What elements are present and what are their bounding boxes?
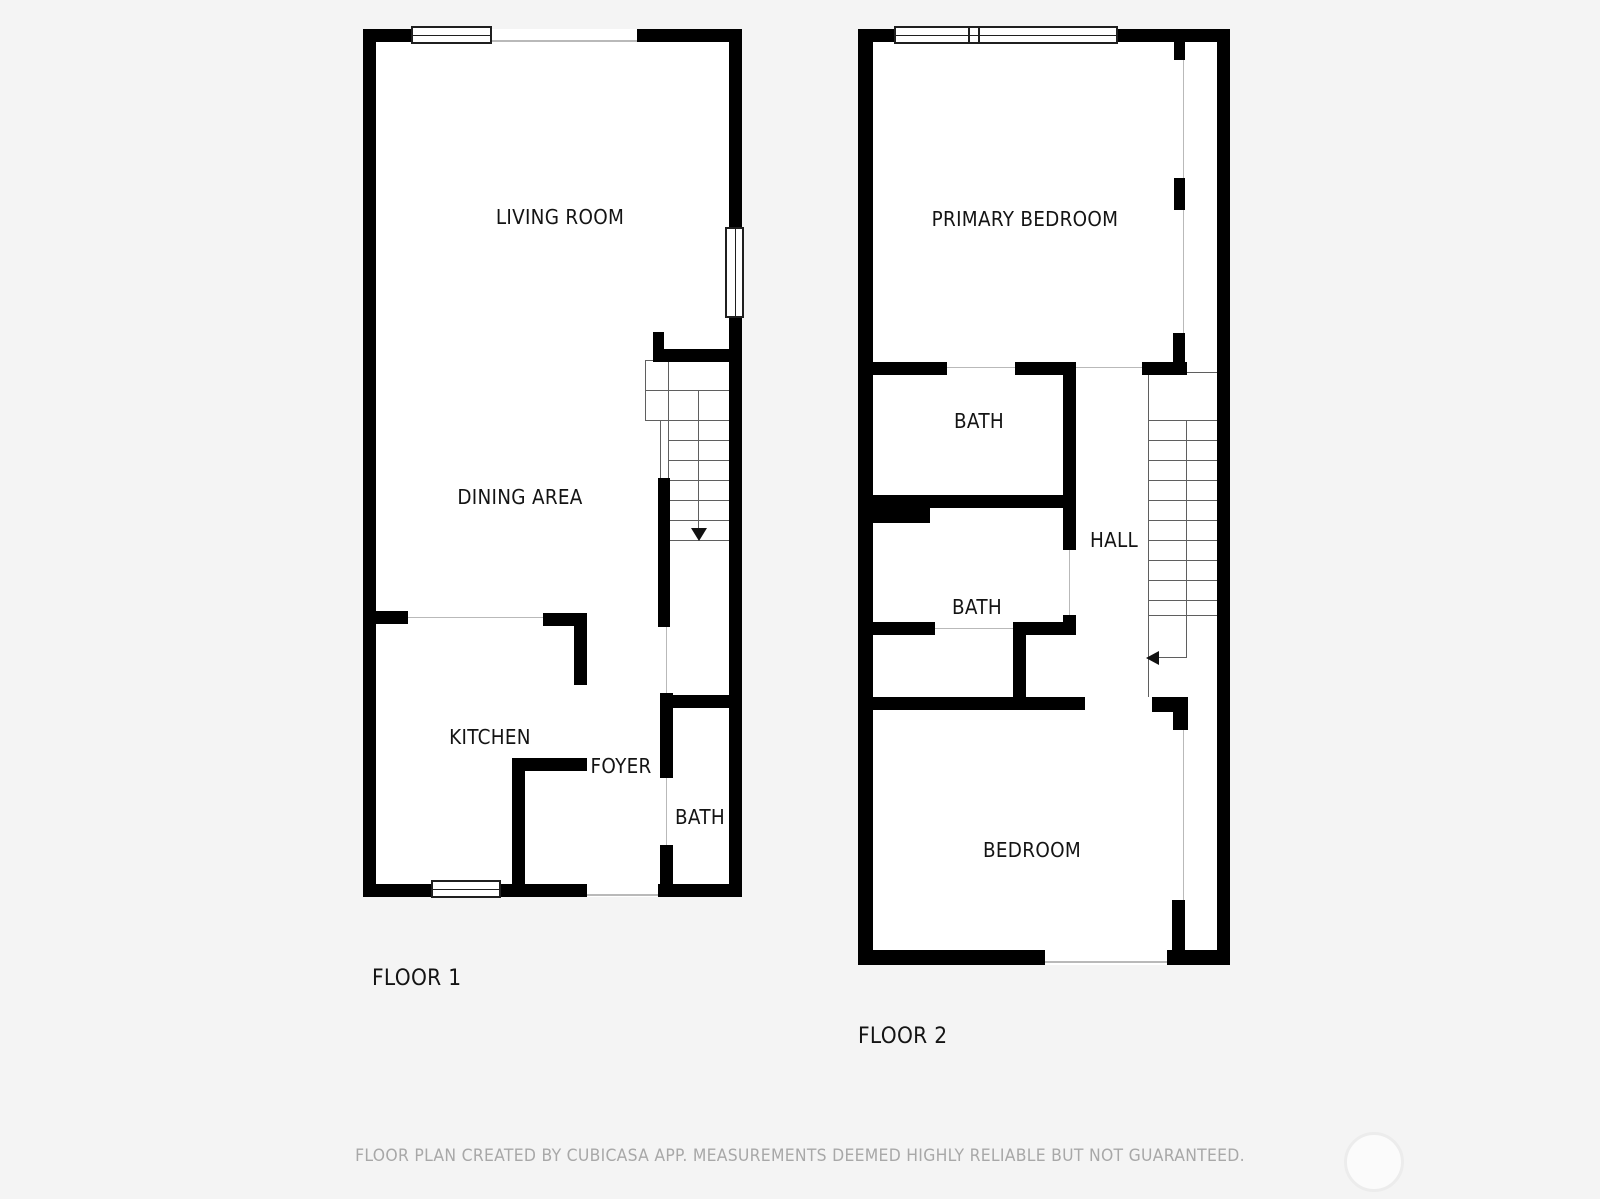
wall (873, 697, 1085, 710)
wall (1118, 29, 1230, 42)
room-label-hall: HALL (1090, 528, 1138, 552)
bedroom-partition-line (1183, 730, 1184, 900)
room-label-foyer: FOYER (590, 754, 651, 778)
wall (873, 362, 947, 375)
stair-tread (1148, 540, 1217, 541)
wall (512, 771, 525, 884)
wall (1152, 697, 1188, 712)
stair-run-line (1157, 657, 1187, 658)
wall (660, 695, 742, 708)
wall (873, 622, 935, 635)
room-label-bedroom: BEDROOM (983, 838, 1081, 862)
wall (658, 478, 670, 627)
window-mullion (968, 28, 970, 42)
wall (653, 349, 742, 362)
foyer-door-line (666, 627, 667, 693)
closet-partition-line (1183, 60, 1184, 178)
wall (376, 611, 408, 624)
watermark-circle-icon (1344, 1132, 1404, 1192)
wall (858, 29, 896, 42)
room-label-bath-upper: BATH (954, 409, 1004, 433)
wall (1142, 362, 1187, 375)
door-line (947, 367, 1015, 368)
wall (1173, 712, 1188, 730)
entry-threshold-line (587, 894, 658, 896)
footer-disclaimer: FLOOR PLAN CREATED BY CUBICASA APP. MEAS… (64, 1146, 1536, 1166)
window (411, 26, 492, 44)
stair-tread (1148, 500, 1217, 501)
wall (363, 29, 376, 897)
floor-plan-canvas: LIVING ROOM DINING AREA KITCHEN FOYER BA… (0, 0, 1600, 1199)
wall (637, 29, 742, 42)
stair-tread (1148, 420, 1217, 421)
wall (873, 505, 930, 523)
stair-tread (1148, 520, 1217, 521)
floor-1-title: FLOOR 1 (372, 966, 461, 991)
wall (729, 317, 742, 897)
opening-line (492, 40, 637, 42)
stair-tread (645, 390, 729, 391)
stair-tread (1148, 615, 1217, 616)
stair-tread (1148, 560, 1217, 561)
wall (363, 29, 413, 42)
window (725, 227, 744, 318)
room-label-primary-bedroom: PRIMARY BEDROOM (932, 207, 1119, 231)
bath-door-line (935, 628, 1013, 629)
window-mullion (978, 28, 980, 42)
room-label-bath: BATH (675, 805, 725, 829)
room-label-dining-area: DINING AREA (457, 485, 582, 509)
wall (858, 950, 1045, 965)
wall (512, 758, 587, 771)
stair-run-line (698, 390, 699, 530)
wall (653, 332, 664, 349)
kitchen-door-line (408, 617, 543, 618)
stair-tread (1148, 440, 1217, 441)
window (894, 26, 1118, 44)
wall (1172, 900, 1185, 950)
wall (729, 29, 742, 228)
stairs-left-arrow-icon (1146, 651, 1159, 665)
wall (858, 29, 873, 965)
stair-tread (645, 420, 729, 421)
wall (1174, 42, 1185, 60)
room-label-bath-lower: BATH (952, 595, 1002, 619)
stair-run-line (1186, 420, 1187, 657)
stair-tread (1148, 600, 1217, 601)
stair-tread (1148, 480, 1217, 481)
closet-partition-line (1183, 210, 1184, 333)
hall-opening-line (1075, 367, 1142, 368)
stair-edge (660, 420, 661, 478)
wall (574, 613, 587, 685)
room-label-kitchen: KITCHEN (449, 725, 531, 749)
wall (1167, 950, 1230, 965)
room-label-living-room: LIVING ROOM (496, 205, 624, 229)
bath-door-line (1069, 550, 1070, 615)
bath-door-line (666, 778, 667, 845)
floor-2-title: FLOOR 2 (858, 1024, 947, 1049)
bottom-opening-line (1045, 961, 1167, 963)
stair-tread (1148, 460, 1217, 461)
wall (660, 845, 673, 897)
wall (1174, 178, 1185, 210)
wall (1217, 29, 1230, 965)
stairs-down-arrow-icon (691, 528, 707, 541)
window (431, 880, 501, 898)
wall (1063, 362, 1076, 550)
stair-tread (1148, 580, 1217, 581)
wall (1173, 333, 1185, 362)
